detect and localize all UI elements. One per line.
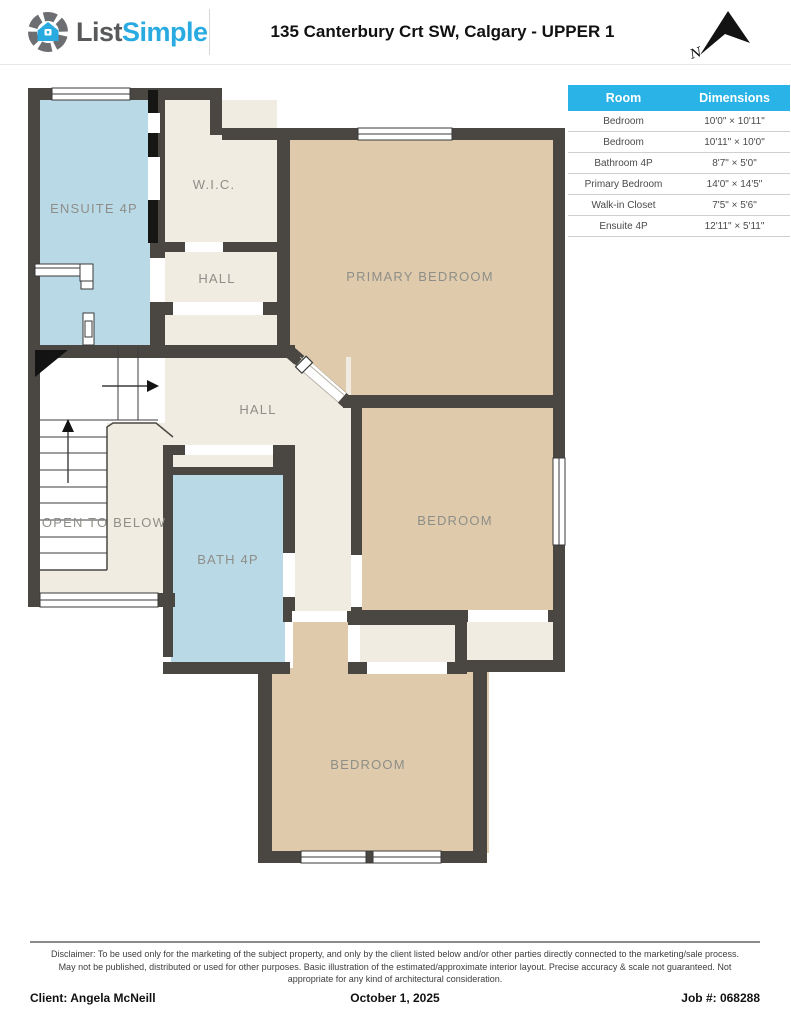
label-ensuite: ENSUITE 4P [50,201,138,216]
table-row: Bedroom10'11" × 10'0" [568,132,790,153]
label-hall-upper: HALL [198,271,235,286]
page: ListSimple 135 Canterbury Crt SW, Calgar… [0,0,791,1024]
north-arrow-icon: N [688,8,760,60]
table-row: Walk-in Closet7'5" × 5'6" [568,195,790,216]
dims-cell: 8'7" × 5'0" [679,158,790,169]
table-row: Primary Bedroom14'0" × 14'5" [568,174,790,195]
room-cell: Bathroom 4P [568,158,679,169]
dims-cell: 12'11" × 5'11" [679,221,790,232]
label-wic: W.I.C. [193,177,236,192]
table-row: Ensuite 4P12'11" × 5'11" [568,216,790,237]
dims-cell: 10'0" × 10'11" [679,116,790,127]
logo-aperture-icon [26,10,70,54]
dims-cell: 10'11" × 10'0" [679,137,790,148]
col-room: Room [568,91,679,105]
client-name: Client: Angela McNeill [30,991,156,1005]
logo-text: ListSimple [76,17,208,48]
col-dimensions: Dimensions [679,91,790,105]
label-bedroom-right: BEDROOM [417,513,493,528]
header-divider [209,9,210,55]
label-bedroom-bottom: BEDROOM [330,757,406,772]
footer-divider [30,941,760,943]
dims-cell: 7'5" × 5'6" [679,200,790,211]
room-table: Room Dimensions Bedroom10'0" × 10'11" Be… [568,85,790,237]
job-number: Job #: 068288 [681,991,760,1005]
table-row: Bedroom10'0" × 10'11" [568,111,790,132]
room-cell: Ensuite 4P [568,221,679,232]
page-title: 135 Canterbury Crt SW, Calgary - UPPER 1 [225,0,660,64]
room-cell: Walk-in Closet [568,200,679,211]
room-cell: Bedroom [568,116,679,127]
room-cell: Bedroom [568,137,679,148]
label-bath: BATH 4P [197,552,259,567]
header: ListSimple 135 Canterbury Crt SW, Calgar… [0,0,791,65]
floor-plan: ENSUITE 4P W.I.C. HALL PRIMARY BEDROOM H… [28,85,568,875]
label-hall-main: HALL [239,402,276,417]
room-cell: Primary Bedroom [568,179,679,190]
label-open-below: OPEN TO BELOW [42,515,166,530]
footer-row: October 1, 2025 Client: Angela McNeill J… [30,991,760,1005]
logo: ListSimple [26,10,208,54]
dims-cell: 14'0" × 14'5" [679,179,790,190]
table-row: Bathroom 4P8'7" × 5'0" [568,153,790,174]
table-header-row: Room Dimensions [568,85,790,111]
logo-word-list: List [76,17,122,47]
label-primary: PRIMARY BEDROOM [346,269,494,284]
logo-word-simple: Simple [122,17,208,47]
disclaimer-text: Disclaimer: To be used only for the mark… [50,948,740,986]
